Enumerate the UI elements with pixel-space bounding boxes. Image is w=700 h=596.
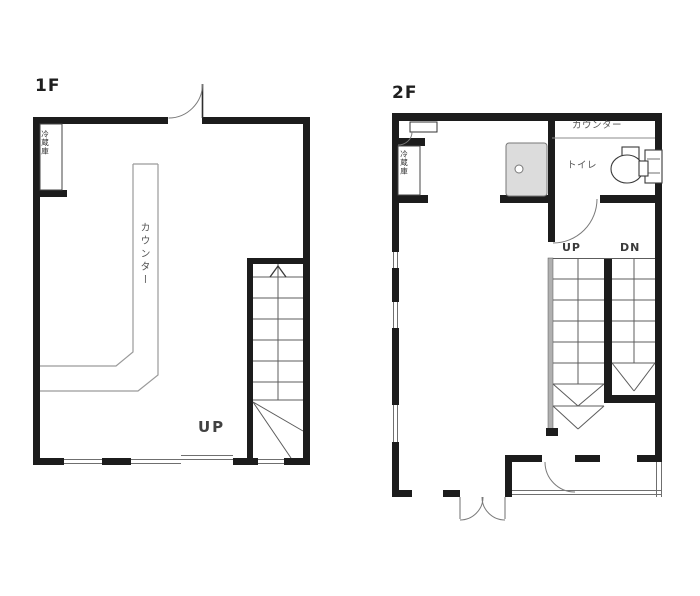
floor-1f-label: 1F xyxy=(35,78,60,95)
2f-toilet-label: トイレ xyxy=(567,161,597,171)
1f-storage-stub-wall xyxy=(33,190,67,197)
2f-equipment-unit xyxy=(506,143,547,196)
2f-toilet-door xyxy=(553,199,597,243)
1f-counter-label: カウンター xyxy=(138,222,148,287)
balcony-door-arc xyxy=(545,462,575,492)
2f-stair-thin-wall xyxy=(548,258,553,432)
entrance-door-arc xyxy=(169,84,203,118)
2f-up-winder-1 xyxy=(553,384,604,406)
1f-sliding-window xyxy=(181,456,233,460)
2f-counter-label: カウンター xyxy=(572,121,622,131)
floorplan-linework xyxy=(0,0,700,596)
floorplan-canvas: 1F 2F カウンター 冷蔵庫 UP カウンター 冷蔵庫 トイレ UP DN xyxy=(0,0,700,596)
1f-outer-walls xyxy=(33,117,310,465)
floor-1f-plan xyxy=(33,84,310,465)
2f-up-winder-2 xyxy=(553,406,604,429)
2f-storage-label: 冷蔵庫 xyxy=(400,150,408,176)
2f-stair-center-wall xyxy=(604,258,612,403)
2f-storage-stub-wall xyxy=(392,195,428,203)
equipment-knob-icon xyxy=(515,165,523,173)
2f-balcony xyxy=(512,462,662,497)
floor-2f-label: 2F xyxy=(392,85,417,102)
1f-staircase xyxy=(247,258,310,462)
2f-stairs-up-label: UP xyxy=(562,242,581,253)
floor-2f-plan xyxy=(392,113,662,520)
toilet-fixture xyxy=(611,147,662,183)
1f-entrance-door xyxy=(169,84,203,118)
2f-stairs-dn-label: DN xyxy=(620,242,640,253)
toilet-bowl-icon xyxy=(611,155,643,183)
2f-staircase xyxy=(546,258,655,436)
2f-center-divider-wall xyxy=(548,113,555,242)
1f-stairs-up-label: UP xyxy=(198,420,225,435)
1f-winder-steps xyxy=(253,402,303,458)
2f-double-doors xyxy=(460,497,505,520)
1f-storage-label: 冷蔵庫 xyxy=(41,130,49,156)
2f-step-wall xyxy=(505,455,512,497)
2f-dn-winder xyxy=(612,363,655,391)
